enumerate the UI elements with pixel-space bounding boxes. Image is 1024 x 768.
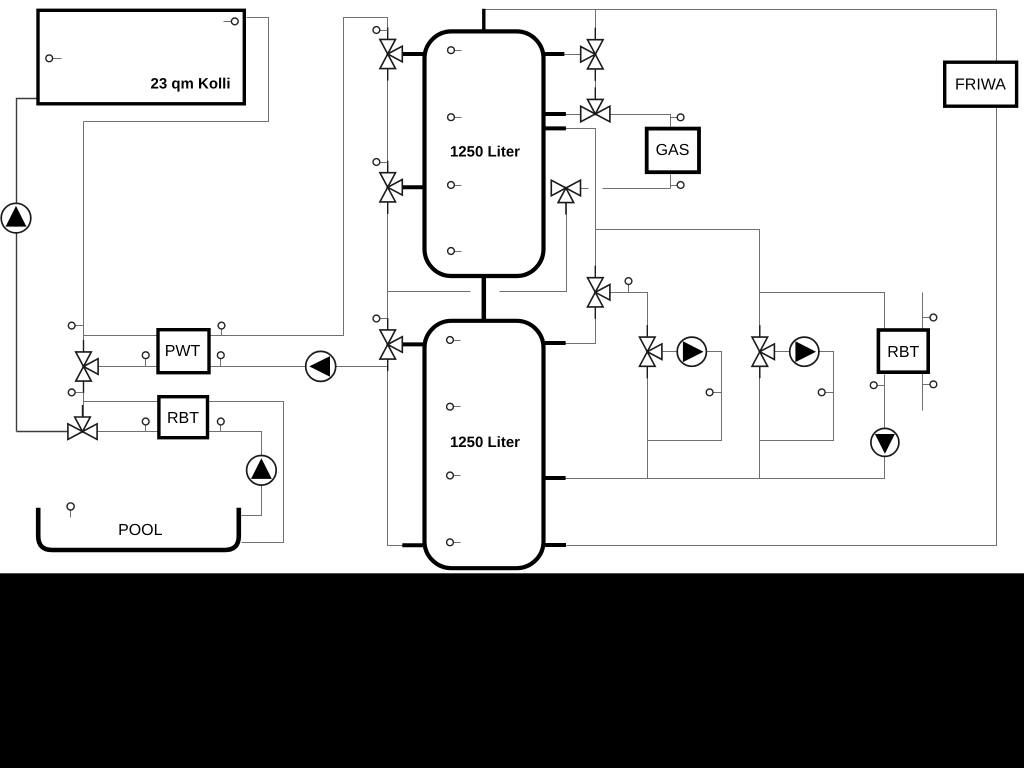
svg-text:PWT: PWT bbox=[165, 343, 201, 360]
svg-text:1250 Liter: 1250 Liter bbox=[450, 434, 520, 451]
svg-text:1250 Liter: 1250 Liter bbox=[450, 144, 520, 161]
svg-text:RBT: RBT bbox=[887, 344, 919, 361]
svg-text:RBT: RBT bbox=[167, 410, 199, 427]
svg-text:GAS: GAS bbox=[656, 142, 690, 159]
svg-text:FRIWA: FRIWA bbox=[955, 77, 1006, 94]
svg-text:23 qm Kolli: 23 qm Kolli bbox=[150, 75, 230, 92]
svg-text:POOL: POOL bbox=[118, 522, 163, 539]
